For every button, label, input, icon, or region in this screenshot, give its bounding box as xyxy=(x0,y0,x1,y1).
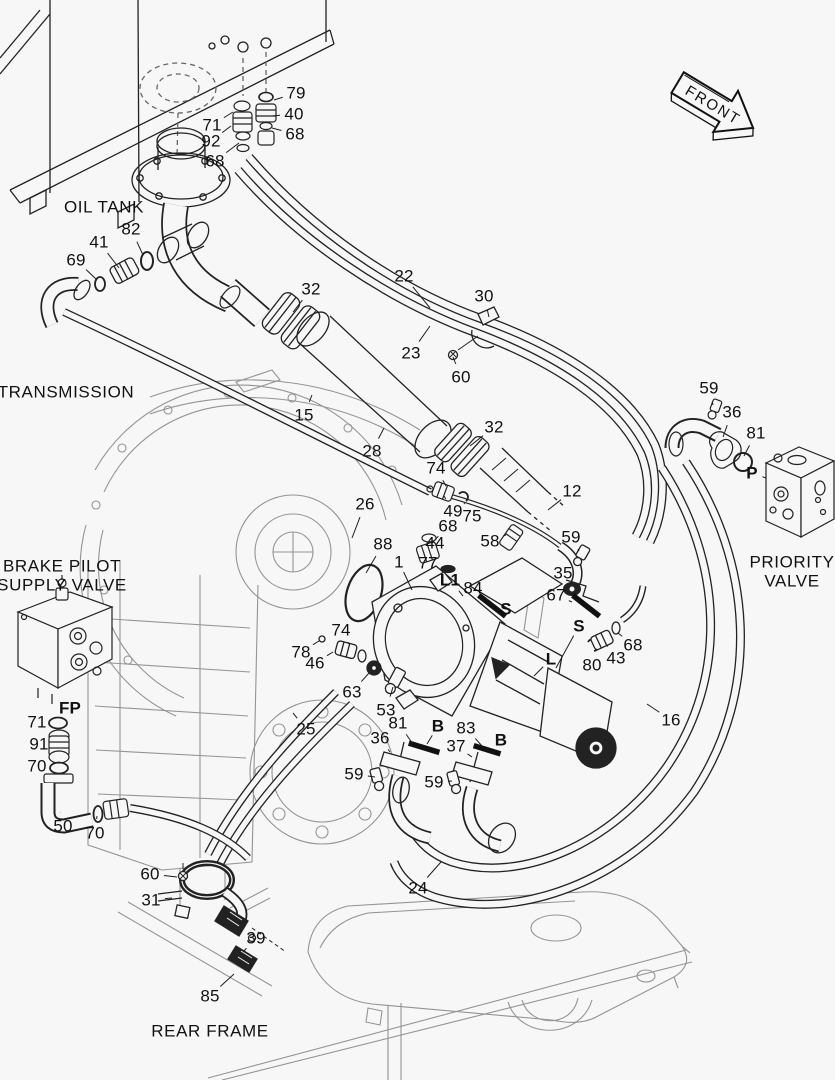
part-label-B-52: B xyxy=(432,718,444,735)
part-label-58-25: 58 xyxy=(480,533,499,550)
part-label-85-68: 85 xyxy=(200,988,219,1005)
part-label-46-46: 46 xyxy=(305,655,324,672)
part-label-79-0: 79 xyxy=(286,85,305,102)
part-label-40-1: 40 xyxy=(284,106,303,123)
part-label-31-65: 31 xyxy=(141,892,160,909)
part-label-81-36: 81 xyxy=(746,425,765,442)
part-label-88-22: 88 xyxy=(373,536,392,553)
part-label-68-5: 68 xyxy=(205,153,224,170)
part-label-L-39: L xyxy=(546,651,557,668)
part-label-44-24: 44 xyxy=(425,535,444,552)
part-label-30-11: 30 xyxy=(474,288,493,305)
labels-layer: OIL TANKTRANSMISSIONBRAKE PILOTSUPPLY VA… xyxy=(0,0,835,1080)
section-label-brake-pilot-2: SUPPLY VALVE xyxy=(0,577,127,594)
part-label-22-9: 22 xyxy=(394,268,413,285)
part-label-S-30: S xyxy=(500,601,512,618)
part-label-36-35: 36 xyxy=(722,404,741,421)
part-label-75-19: 75 xyxy=(462,508,481,525)
section-label-oil-tank: OIL TANK xyxy=(64,199,144,216)
part-label-68-2: 68 xyxy=(285,126,304,143)
section-label-priority-2: VALVE xyxy=(764,573,819,590)
part-label-67-33: 67 xyxy=(546,587,565,604)
part-label-69-8: 69 xyxy=(66,252,85,269)
part-label-59-56: 59 xyxy=(344,766,363,783)
diagram-canvas: FRONT OIL TANKTRANSMISSIONBRAKE PILOTSUP… xyxy=(0,0,835,1080)
part-label-25-49: 25 xyxy=(296,721,315,738)
part-label-L1-28: L1 xyxy=(440,572,460,589)
part-label-16-43: 16 xyxy=(661,712,680,729)
section-label-priority-1: PRIORITY xyxy=(749,554,834,571)
part-label-32-14: 32 xyxy=(484,419,503,436)
part-label-60-64: 60 xyxy=(140,866,159,883)
part-label-24-67: 24 xyxy=(408,880,427,897)
part-label-12-20: 12 xyxy=(562,483,581,500)
part-label-15-15: 15 xyxy=(294,407,313,424)
part-label-70-61: 70 xyxy=(27,758,46,775)
part-label-74-44: 74 xyxy=(331,622,350,639)
part-label-74-17: 74 xyxy=(426,460,445,477)
part-label-71-59: 71 xyxy=(27,714,46,731)
section-label-transmission: TRANSMISSION xyxy=(0,384,134,401)
part-label-68-42: 68 xyxy=(623,637,642,654)
part-label-82-6: 82 xyxy=(121,221,140,238)
part-label-S-38: S xyxy=(573,618,585,635)
part-label-26-21: 26 xyxy=(355,496,374,513)
part-label-35-32: 35 xyxy=(553,565,572,582)
part-label-FP-58: FP xyxy=(59,700,81,717)
part-label-77-26: 77 xyxy=(418,555,437,572)
part-label-37-55: 37 xyxy=(446,738,465,755)
part-label-50-62: 50 xyxy=(53,818,72,835)
part-label-1-27: 1 xyxy=(394,554,404,571)
part-label-70-63: 70 xyxy=(85,825,104,842)
part-label-59-57: 59 xyxy=(424,774,443,791)
part-label-36-51: 36 xyxy=(370,730,389,747)
part-label-80-40: 80 xyxy=(582,657,601,674)
part-label-83-53: 83 xyxy=(456,720,475,737)
part-label-32-13: 32 xyxy=(301,281,320,298)
part-label-91-60: 91 xyxy=(29,736,48,753)
part-label-28-16: 28 xyxy=(362,443,381,460)
part-label-41-7: 41 xyxy=(89,234,108,251)
part-label-59-31: 59 xyxy=(561,529,580,546)
section-label-brake-pilot-1: BRAKE PILOT xyxy=(3,558,121,575)
part-label-59-34: 59 xyxy=(699,380,718,397)
part-label-84-29: 84 xyxy=(463,580,482,597)
part-label-68-23: 68 xyxy=(438,518,457,535)
section-label-rear-frame: REAR FRAME xyxy=(151,1023,268,1040)
part-label-39-66: 39 xyxy=(246,930,265,947)
part-label-60-12: 60 xyxy=(451,369,470,386)
part-label-P-37: P xyxy=(746,465,758,482)
part-label-23-10: 23 xyxy=(401,345,420,362)
part-label-B-54: B xyxy=(495,732,507,749)
part-label-63-47: 63 xyxy=(342,684,361,701)
part-label-81-50: 81 xyxy=(388,715,407,732)
part-label-92-4: 92 xyxy=(201,133,220,150)
